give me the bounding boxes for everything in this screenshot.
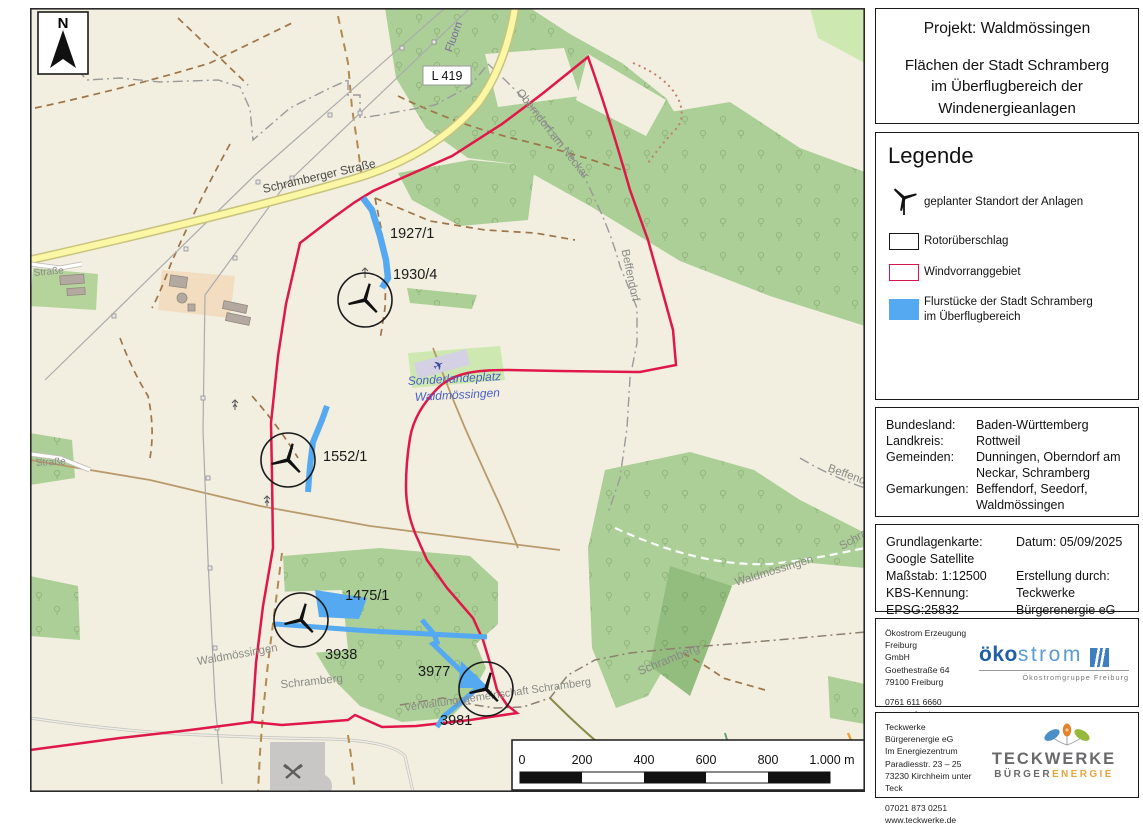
basis-spacer bbox=[1016, 551, 1128, 568]
map-layout-page: ✈ Schramberger Straße bbox=[0, 0, 1143, 800]
leaves-icon bbox=[1039, 723, 1095, 749]
admin-label: Landkreis: bbox=[886, 433, 976, 449]
okostrom-address: Ökostrom Erzeugung Freiburg GmbH Goethes… bbox=[885, 627, 979, 698]
teckwerke-phone: 07021 873 0251 bbox=[885, 802, 979, 814]
vorranggebiet-swatch-icon bbox=[889, 264, 919, 281]
basis-erstellung-value2: Bürgerenergie eG bbox=[1016, 602, 1128, 619]
map-canvas: ✈ Schramberger Straße bbox=[30, 8, 865, 792]
okostrom-city: 79100 Freiburg bbox=[885, 676, 979, 688]
basis-datum: Datum: 05/09/2025 bbox=[1016, 534, 1128, 551]
road-badge-l419: L 419 bbox=[423, 66, 471, 85]
svg-text:L 419: L 419 bbox=[432, 69, 463, 83]
okostrom-logo-text-bold: öko bbox=[979, 643, 1018, 667]
admin-label: Gemarkungen: bbox=[886, 481, 976, 513]
basis-right-column: Datum: 05/09/2025 Erstellung durch: Teck… bbox=[1016, 534, 1128, 602]
teckwerke-center: Im Energiezentrum bbox=[885, 745, 979, 757]
rotor-swatch-icon bbox=[889, 233, 919, 250]
north-arrow: N bbox=[38, 12, 88, 74]
svg-text:400: 400 bbox=[634, 753, 655, 767]
legend-label-turbine: geplanter Standort der Anlagen bbox=[924, 195, 1083, 210]
map-basis-box: Grundlagenkarte: Google Satellite Maßsta… bbox=[875, 524, 1139, 612]
legend-item-vorranggebiet: Windvorranggebiet bbox=[884, 264, 1130, 281]
basis-grundlagenkarte-label: Grundlagenkarte: bbox=[886, 534, 1016, 551]
legend-item-flurstuecke: Flurstücke der Stadt Schramberg im Überf… bbox=[884, 295, 1130, 325]
admin-value: Rottweil bbox=[976, 433, 1128, 449]
teckwerke-website: www.teckwerke.de bbox=[885, 814, 979, 826]
admin-label: Bundesland: bbox=[886, 417, 976, 433]
parcel-label-3977: 3977 bbox=[418, 664, 450, 680]
basis-erstellung-label: Erstellung durch: bbox=[1016, 568, 1128, 585]
admin-value: Beffendorf, Seedorf, Waldmössingen bbox=[976, 481, 1128, 513]
okostrom-street: Goethestraße 64 bbox=[885, 664, 979, 676]
legend-label-vorranggebiet: Windvorranggebiet bbox=[924, 265, 1021, 280]
basis-massstab: Maßstab: 1:12500 bbox=[886, 568, 1016, 585]
svg-text:200: 200 bbox=[572, 753, 593, 767]
basis-erstellung-value1: Teckwerke bbox=[1016, 585, 1128, 602]
legend-label-flurstuecke: Flurstücke der Stadt Schramberg im Überf… bbox=[924, 295, 1094, 325]
road-label-strasse-lower: Straße bbox=[36, 456, 67, 469]
admin-row-gemarkungen: Gemarkungen: Beffendorf, Seedorf, Waldmö… bbox=[886, 481, 1128, 513]
okostrom-logo-subtitle: Ökostromgruppe Freiburg bbox=[979, 673, 1129, 682]
admin-row-landkreis: Landkreis: Rottweil bbox=[886, 433, 1128, 449]
admin-label: Gemeinden: bbox=[886, 449, 976, 481]
teckwerke-logo-sub-orange: ENERGIE bbox=[1052, 769, 1114, 780]
svg-text:0: 0 bbox=[519, 753, 526, 767]
legend-box: Legende geplanter Standort der Anlag bbox=[875, 132, 1139, 400]
project-subtitle-2: im Überflugbereich der bbox=[876, 76, 1138, 97]
okostrom-logo: ökostrom Ökostromgruppe Freiburg bbox=[979, 627, 1129, 698]
teckwerke-street: Paradiesstr. 23 – 25 bbox=[885, 758, 979, 770]
okostrom-phone: 0761 611 6660 bbox=[885, 696, 979, 708]
svg-text:800: 800 bbox=[758, 753, 779, 767]
teckwerke-logo-main: TECKWERKE bbox=[979, 750, 1129, 769]
wind-turbine-icon bbox=[887, 185, 921, 219]
scale-bar: 0 200 400 600 800 1.000 m bbox=[512, 740, 865, 790]
legend-item-rotor: Rotorüberschlag bbox=[884, 233, 1130, 250]
teckwerke-logo-sub-gray: BÜRGER bbox=[994, 769, 1052, 780]
flurstuecke-swatch-icon bbox=[889, 299, 919, 320]
admin-value: Dunningen, Oberndorf am Neckar, Schrambe… bbox=[976, 449, 1128, 481]
parcel-label-3938: 3938 bbox=[325, 647, 357, 663]
admin-row-gemeinden: Gemeinden: Dunningen, Oberndorf am Necka… bbox=[886, 449, 1128, 481]
legend-item-turbine: geplanter Standort der Anlagen bbox=[884, 185, 1130, 219]
admin-value: Baden-Württemberg bbox=[976, 417, 1128, 433]
teckwerke-city: 73230 Kirchheim unter Teck bbox=[885, 770, 979, 794]
basis-epsg: EPSG:25832 bbox=[886, 602, 1016, 619]
svg-text:600: 600 bbox=[696, 753, 717, 767]
svg-text:1.000 m: 1.000 m bbox=[809, 753, 854, 767]
legend-heading: Legende bbox=[888, 143, 1138, 169]
map-svg: ✈ Schramberger Straße bbox=[30, 8, 865, 792]
okostrom-name2: GmbH bbox=[885, 651, 979, 663]
okostrom-logo-icon bbox=[1090, 648, 1109, 667]
basis-grundlagenkarte-value: Google Satellite bbox=[886, 551, 1016, 568]
basis-left-column: Grundlagenkarte: Google Satellite Maßsta… bbox=[886, 534, 1016, 602]
project-subtitle-3: Windenergieanlagen bbox=[876, 98, 1138, 119]
project-subtitle-1: Flächen der Stadt Schramberg bbox=[876, 55, 1138, 76]
okostrom-logo-text-light: strom bbox=[1018, 643, 1083, 667]
title-box: Projekt: Waldmössingen Flächen der Stadt… bbox=[875, 8, 1139, 124]
teckwerke-contact-box: Teckwerke Bürgerenergie eG Im Energiezen… bbox=[875, 712, 1139, 798]
parcel-label-1475: 1475/1 bbox=[345, 588, 389, 604]
basis-kbs-label: KBS-Kennung: bbox=[886, 585, 1016, 602]
okostrom-name: Ökostrom Erzeugung Freiburg bbox=[885, 627, 979, 651]
quarry-area bbox=[270, 742, 332, 792]
svg-text:N: N bbox=[58, 15, 69, 32]
admin-info-box: Bundesland: Baden-Württemberg Landkreis:… bbox=[875, 407, 1139, 517]
parcel-label-1927: 1927/1 bbox=[390, 226, 434, 242]
okostrom-contact-box: Ökostrom Erzeugung Freiburg GmbH Goethes… bbox=[875, 618, 1139, 707]
parcel-label-1930: 1930/4 bbox=[393, 267, 437, 283]
project-title: Projekt: Waldmössingen bbox=[876, 20, 1138, 38]
teckwerke-logo: TECKWERKE BÜRGERENERGIE bbox=[979, 721, 1129, 789]
parcel-label-3981: 3981 bbox=[440, 713, 472, 729]
teckwerke-name: Teckwerke Bürgerenergie eG bbox=[885, 721, 979, 745]
legend-label-rotor: Rotorüberschlag bbox=[924, 234, 1008, 249]
admin-row-bundesland: Bundesland: Baden-Württemberg bbox=[886, 417, 1128, 433]
teckwerke-address: Teckwerke Bürgerenergie eG Im Energiezen… bbox=[885, 721, 979, 789]
parcel-label-1552: 1552/1 bbox=[323, 449, 367, 465]
